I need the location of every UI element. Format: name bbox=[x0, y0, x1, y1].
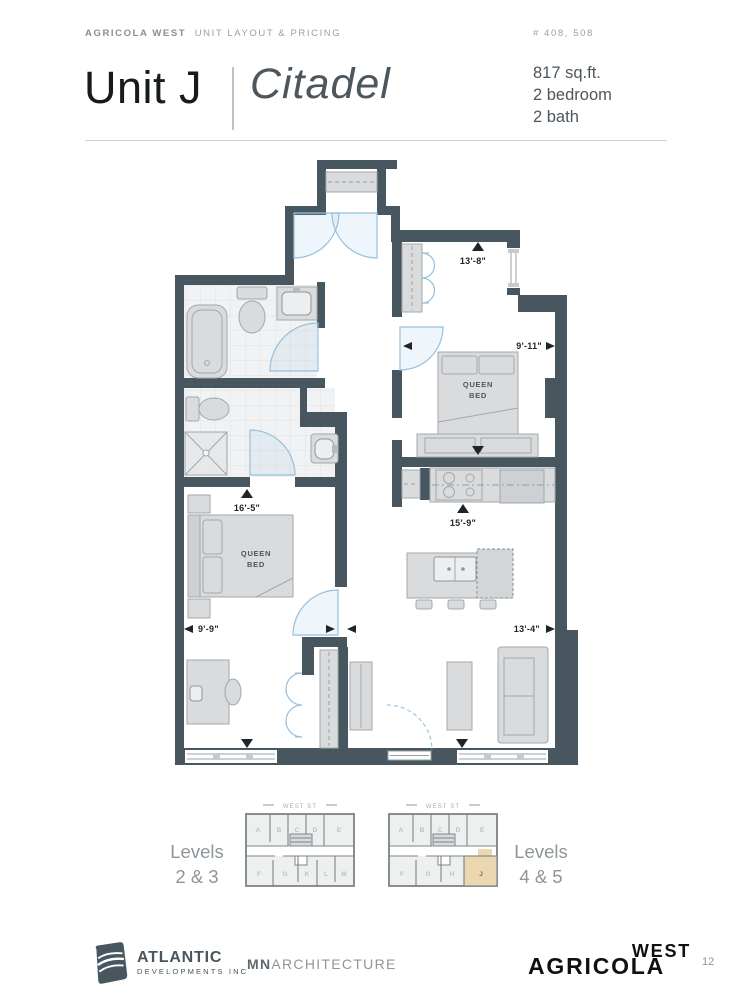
window-living bbox=[457, 750, 548, 763]
developer-logo-block: ATLANTIC DEVELOPMENTS INC bbox=[92, 942, 248, 984]
architect-logo: MNARCHITECTURE bbox=[247, 956, 397, 972]
kp-left-unit-a: A bbox=[256, 827, 261, 834]
keyplan-levels-4-5: WEST ST A B C D E F G H J bbox=[386, 797, 500, 894]
title-rule bbox=[85, 140, 667, 141]
street-label-left: WEST ST bbox=[283, 804, 317, 810]
brand-lockup: AGRICOLA WEST bbox=[528, 953, 665, 980]
kp-left-unit-c: C bbox=[295, 827, 300, 834]
header-brand: AGRICOLA WEST bbox=[85, 28, 186, 39]
entry-door-left bbox=[294, 213, 339, 258]
stat-bedrooms: 2 bedroom bbox=[533, 84, 612, 106]
window-bedroom2 bbox=[507, 248, 520, 288]
kp-left-unit-k: K bbox=[305, 871, 310, 878]
balcony-door bbox=[387, 705, 432, 760]
bedroom2-bed-label-2: BED bbox=[469, 391, 487, 400]
developer-subtitle: DEVELOPMENTS INC bbox=[137, 967, 248, 976]
kp-left-unit-m: M bbox=[341, 871, 346, 878]
atlantic-wave-icon bbox=[92, 942, 128, 984]
kp-left-unit-d: D bbox=[313, 827, 318, 834]
dim-living-width: 13'-4" bbox=[514, 624, 540, 634]
architect-initials: MN bbox=[247, 956, 271, 972]
developer-name-block: ATLANTIC DEVELOPMENTS INC bbox=[137, 950, 248, 976]
kp-right-unit-d: D bbox=[456, 827, 461, 834]
brochure-page: AGRICOLA WEST UNIT LAYOUT & PRICING # 40… bbox=[0, 0, 750, 1000]
page-number: 12 bbox=[702, 956, 714, 968]
kp-right-unit-b: B bbox=[420, 827, 425, 834]
bedroom2-bed-label-1: QUEEN bbox=[463, 380, 493, 389]
bedroom1-bed-label-1: QUEEN bbox=[241, 549, 271, 558]
dim-bedroom2-width: 9'-11" bbox=[516, 341, 542, 351]
title-divider bbox=[232, 67, 234, 130]
brand-sub: WEST bbox=[632, 941, 691, 962]
header-unit-numbers: # 408, 508 bbox=[533, 28, 594, 39]
kp-left-unit-b: B bbox=[277, 827, 282, 834]
kitchen-island bbox=[407, 549, 513, 609]
kp-right-unit-h-g: G bbox=[425, 871, 430, 878]
header-left: AGRICOLA WEST UNIT LAYOUT & PRICING bbox=[85, 28, 341, 39]
kp-left-unit-e: E bbox=[337, 827, 342, 834]
bedroom2-closet-bifold bbox=[422, 253, 435, 303]
dim-bedroom1-height: 16'-5" bbox=[234, 503, 260, 513]
kp-right-unit-a: A bbox=[399, 827, 404, 834]
header-section: UNIT LAYOUT & PRICING bbox=[195, 28, 342, 39]
bedroom1-bed-label-2: BED bbox=[247, 560, 265, 569]
kp-right-unit-c: C bbox=[438, 827, 443, 834]
stat-baths: 2 bath bbox=[533, 106, 612, 128]
kp-left-unit-f: F bbox=[257, 871, 261, 878]
keyplan-levels-2-3: WEST ST A B C D E F G K L M bbox=[243, 797, 357, 894]
unit-stats: 817 sq.ft. 2 bedroom 2 bath bbox=[533, 62, 612, 128]
page-title-name: Citadel bbox=[250, 60, 391, 109]
levels-label-right: Levels 4 & 5 bbox=[501, 839, 581, 889]
page-title-unit: Unit J bbox=[84, 62, 202, 114]
stat-area: 817 sq.ft. bbox=[533, 62, 612, 84]
kp-left-unit-l: L bbox=[324, 871, 328, 878]
bedroom2-furniture bbox=[417, 352, 538, 457]
kitchen bbox=[430, 468, 555, 503]
kp-right-unit-h: H bbox=[450, 871, 455, 878]
developer-name: ATLANTIC bbox=[137, 950, 248, 966]
bedroom1-closet-bifold bbox=[286, 673, 302, 737]
bedroom2-door bbox=[400, 327, 443, 370]
kp-left-unit-g: G bbox=[282, 871, 287, 878]
levels-label-left: Levels 2 & 3 bbox=[157, 839, 237, 889]
bedroom1-furniture bbox=[187, 495, 293, 724]
dim-bedroom1-width: 9'-9" bbox=[198, 624, 219, 634]
kp-right-unit-j: J bbox=[479, 871, 483, 878]
dim-kitchen-height: 15'-9" bbox=[450, 518, 476, 528]
window-bedroom1 bbox=[185, 750, 277, 763]
living-furniture bbox=[350, 647, 548, 743]
kp-right-unit-f: F bbox=[400, 871, 404, 878]
street-label-right: WEST ST bbox=[426, 804, 460, 810]
dim-bedroom2-height: 13'-8" bbox=[460, 256, 486, 266]
floor-plan: 13'-8" 9'-11" 15'-9" 13'-4" 16'-5" 9'-9"… bbox=[170, 150, 590, 790]
architect-name: ARCHITECTURE bbox=[271, 956, 396, 972]
kp-right-unit-e: E bbox=[480, 827, 485, 834]
